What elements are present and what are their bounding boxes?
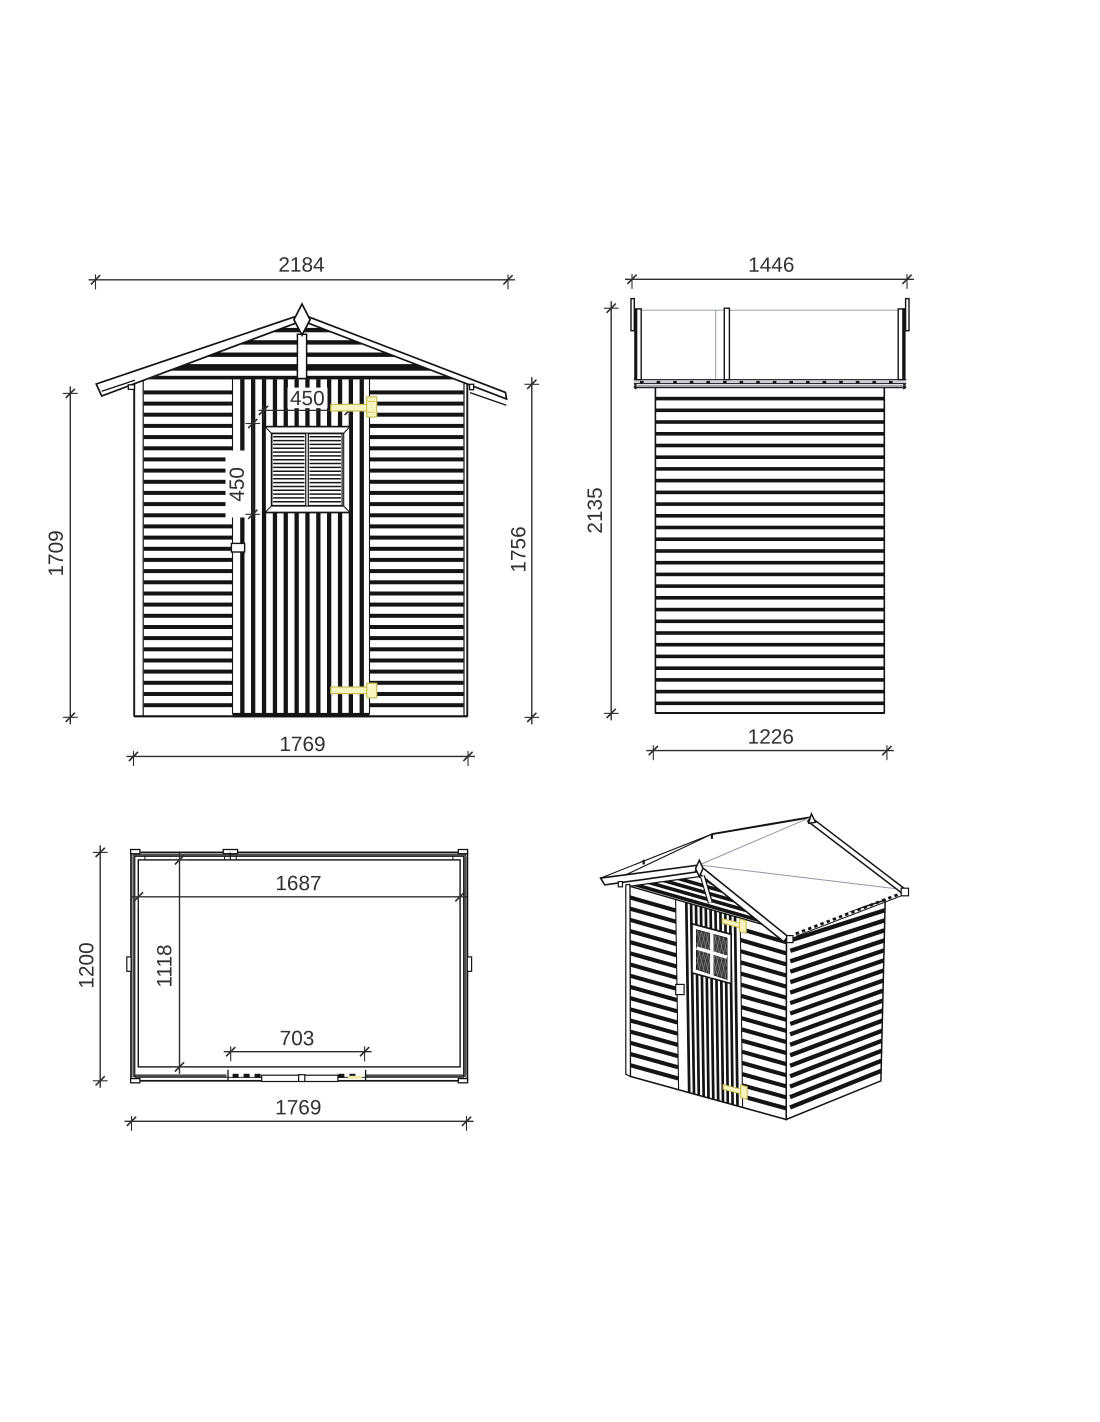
svg-text:1200: 1200	[75, 942, 98, 988]
svg-text:1226: 1226	[748, 726, 794, 749]
svg-text:1769: 1769	[275, 1096, 321, 1119]
svg-text:1756: 1756	[508, 526, 531, 572]
svg-text:1118: 1118	[153, 944, 176, 987]
svg-text:1769: 1769	[279, 733, 325, 756]
svg-text:1446: 1446	[748, 254, 794, 277]
svg-text:450: 450	[226, 467, 249, 502]
svg-text:1687: 1687	[275, 872, 321, 895]
svg-text:2135: 2135	[584, 487, 607, 533]
svg-text:1709: 1709	[45, 530, 68, 576]
svg-text:450: 450	[290, 387, 325, 410]
svg-text:703: 703	[280, 1027, 315, 1050]
svg-text:2184: 2184	[278, 254, 324, 277]
